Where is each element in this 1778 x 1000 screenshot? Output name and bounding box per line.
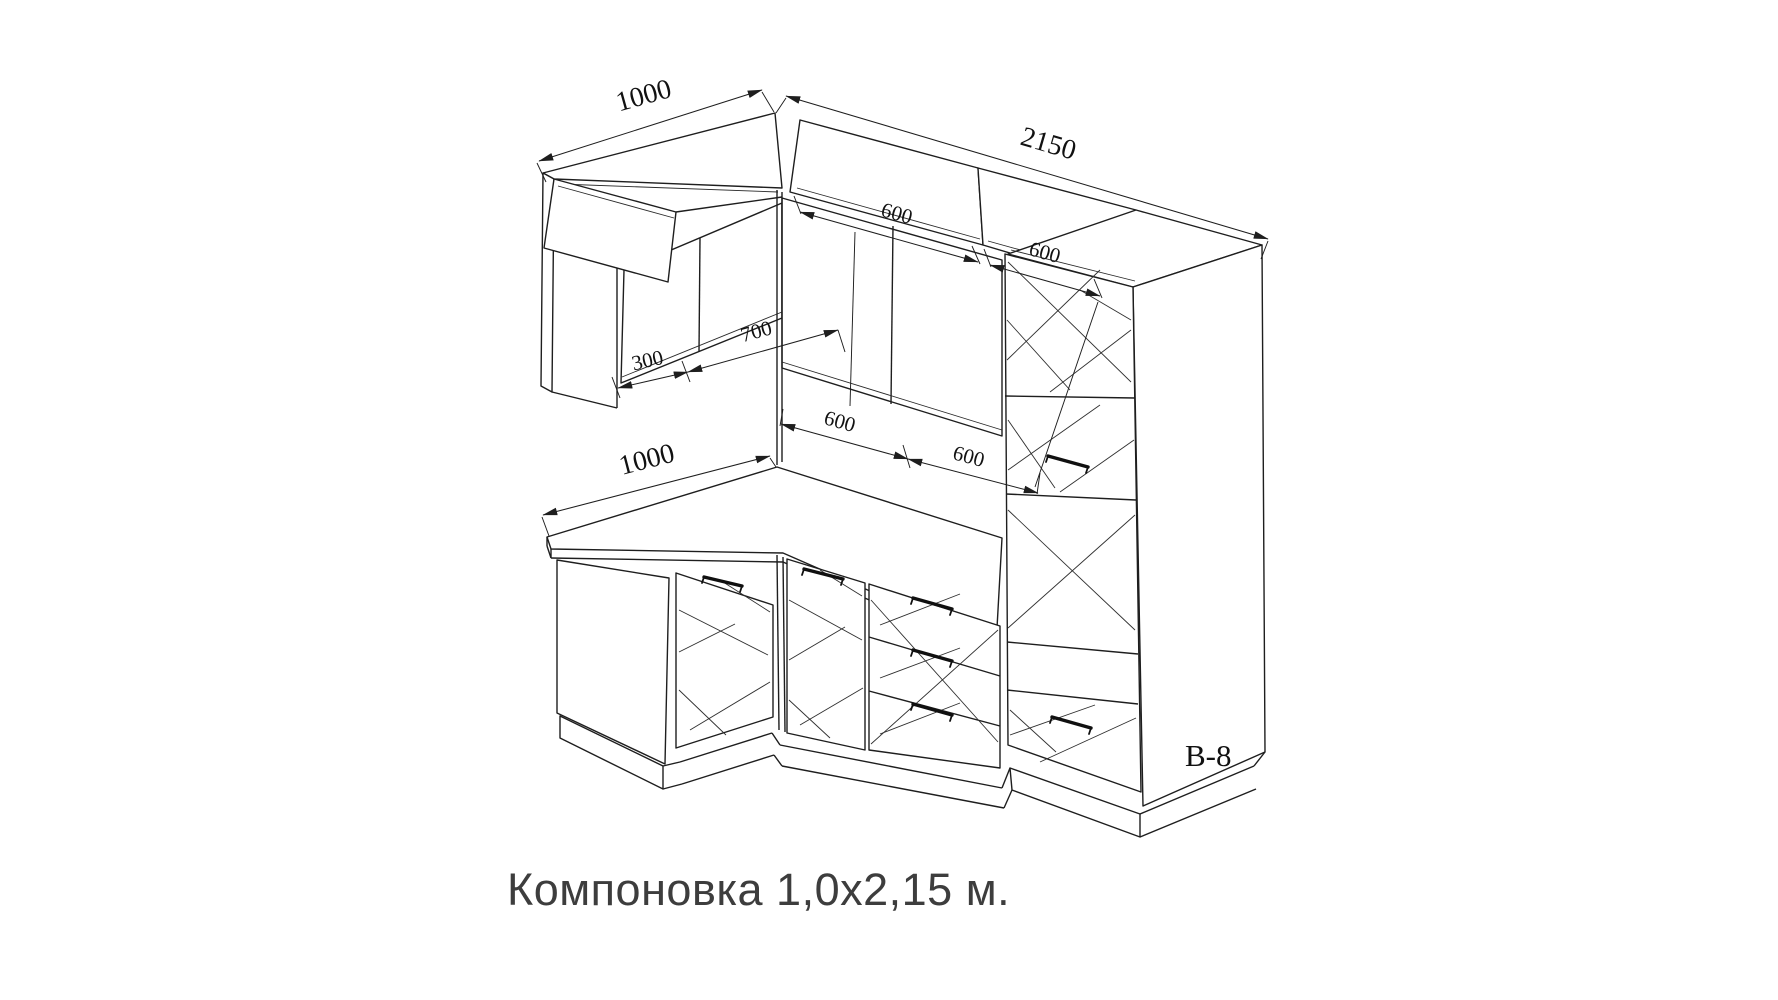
tall-cabinet-front bbox=[1005, 254, 1141, 792]
screenshot-root: 1000 2150 600 600 300 700 600 600 1000 В… bbox=[0, 0, 1778, 1000]
tall-cabinet-side bbox=[1133, 245, 1265, 806]
dim-1000-counter: 1000 bbox=[616, 438, 678, 482]
kitchen-drawing: 1000 2150 600 600 300 700 600 600 1000 В… bbox=[0, 0, 1778, 1000]
model-label: В-8 bbox=[1185, 738, 1232, 773]
corner-box-top bbox=[543, 113, 782, 188]
corner-base-door bbox=[676, 573, 773, 748]
corner-box-fascia bbox=[544, 179, 676, 282]
drawing-caption: Компоновка 1,0х2,15 м. bbox=[507, 864, 1010, 915]
dim-600-mid-1: 600 bbox=[821, 405, 858, 437]
dim-2150: 2150 bbox=[1017, 121, 1079, 166]
dim-1000-top: 1000 bbox=[613, 73, 675, 118]
dim-600-mid-2: 600 bbox=[950, 441, 987, 472]
